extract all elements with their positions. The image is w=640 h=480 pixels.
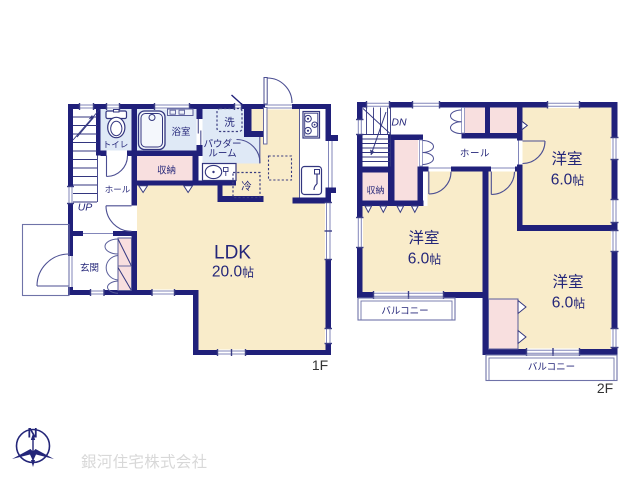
svg-text:2F: 2F [597, 380, 613, 396]
svg-text:洗: 洗 [224, 117, 235, 129]
svg-text:1F: 1F [312, 357, 328, 373]
svg-text:銀河住宅株式会社: 銀河住宅株式会社 [81, 453, 207, 471]
svg-text:収納: 収納 [157, 165, 176, 177]
svg-text:トイレ: トイレ [103, 140, 129, 150]
svg-text:洋室: 洋室 [408, 229, 439, 247]
svg-text:バルコニー: バルコニー [381, 306, 428, 317]
svg-text:ホール: ホール [105, 185, 131, 195]
svg-text:6.0帖: 6.0帖 [551, 172, 585, 189]
svg-text:浴室: 浴室 [171, 126, 190, 138]
svg-text:20.0帖: 20.0帖 [212, 264, 254, 281]
svg-text:DN: DN [391, 117, 407, 129]
svg-text:6.0帖: 6.0帖 [408, 251, 442, 268]
svg-text:LDK: LDK [214, 243, 251, 264]
svg-text:収納: 収納 [366, 185, 384, 196]
svg-text:UP: UP [78, 202, 93, 214]
svg-text:6.0帖: 6.0帖 [552, 295, 586, 312]
svg-text:ホール: ホール [460, 149, 490, 160]
svg-text:ルーム: ルーム [208, 149, 236, 160]
svg-text:玄関: 玄関 [80, 262, 99, 274]
svg-text:洋室: 洋室 [551, 150, 582, 168]
svg-text:冷: 冷 [241, 180, 252, 193]
svg-text:バルコニー: バルコニー [528, 362, 575, 373]
svg-text:洋室: 洋室 [552, 273, 583, 291]
